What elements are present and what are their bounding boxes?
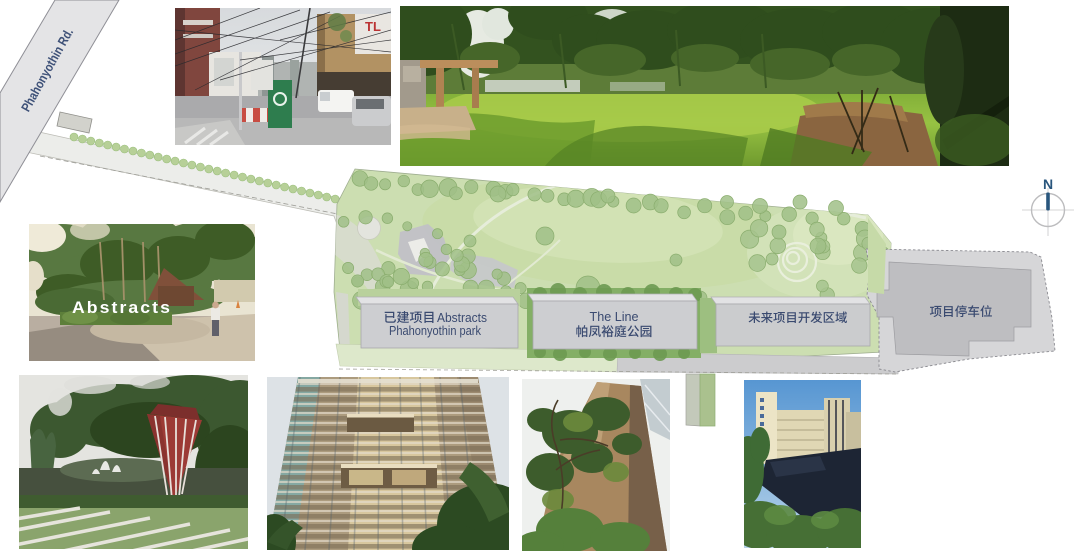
svg-text:The Line: The Line bbox=[590, 309, 639, 324]
svg-text:Abstracts: Abstracts bbox=[72, 298, 172, 317]
svg-text:Phahonyothin park: Phahonyothin park bbox=[389, 323, 481, 338]
svg-text:TL: TL bbox=[365, 19, 381, 34]
svg-text:N: N bbox=[1043, 176, 1053, 192]
